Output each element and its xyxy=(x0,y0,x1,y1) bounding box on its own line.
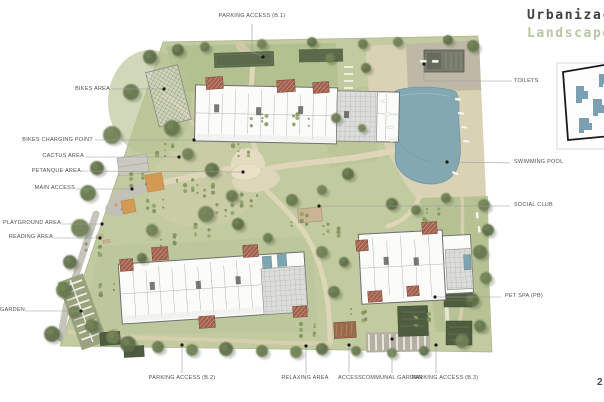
plan-label-playground-area: PLAYGROUND AREA xyxy=(3,220,61,227)
plan-label-garden: GARDEN xyxy=(0,307,25,314)
relaxing-area-structure xyxy=(334,321,357,338)
plan-label-toilets: TOILETS xyxy=(514,78,539,85)
toilets-building xyxy=(424,50,464,72)
plan-label-bikes-area: BIKES AREA xyxy=(75,86,110,93)
inset-key-map xyxy=(557,63,604,149)
plan-label-petanque-area: PETANQUE AREA xyxy=(32,168,81,175)
site-plan-drawing xyxy=(0,0,604,402)
pet-spa-pool xyxy=(463,255,471,270)
page-number: 2 xyxy=(597,377,603,388)
plan-label-main-access: MAIN ACCESS xyxy=(35,185,75,192)
sheet-title-line2: Landscape xyxy=(527,26,604,41)
sheet-title-line1: Urbanizac xyxy=(527,8,604,23)
plan-label-parking-b1: PARKING ACCESS (B.1) xyxy=(219,13,286,20)
plan-label-bikes-charging-point: BIKES CHARGING POINT xyxy=(22,137,93,144)
plan-label-reading-area: READING AREA xyxy=(9,234,53,241)
plan-label-relaxing-area: RELAXING AREA xyxy=(281,375,328,382)
plan-label-parking-b2: PARKING ACCESS (B.2) xyxy=(149,375,216,382)
plan-label-parking-b3: PARKING ACCESS (B.3) xyxy=(412,375,479,382)
plan-label-access: ACCESS xyxy=(338,375,362,382)
plan-label-pet-spa: PET SPA (PB) xyxy=(505,293,543,300)
plan-label-cactus-area: CACTUS AREA xyxy=(42,153,84,160)
sheet-title: Urbanizac Landscape xyxy=(527,8,604,41)
plan-label-social-club: SOCIAL CLUB xyxy=(514,202,553,209)
landscape-masterplan-sheet: PARKING ACCESS (B.1) BIKES AREA BIKES CH… xyxy=(0,0,604,402)
plan-label-swimming-pool: SWIMMING POOL xyxy=(514,159,563,166)
